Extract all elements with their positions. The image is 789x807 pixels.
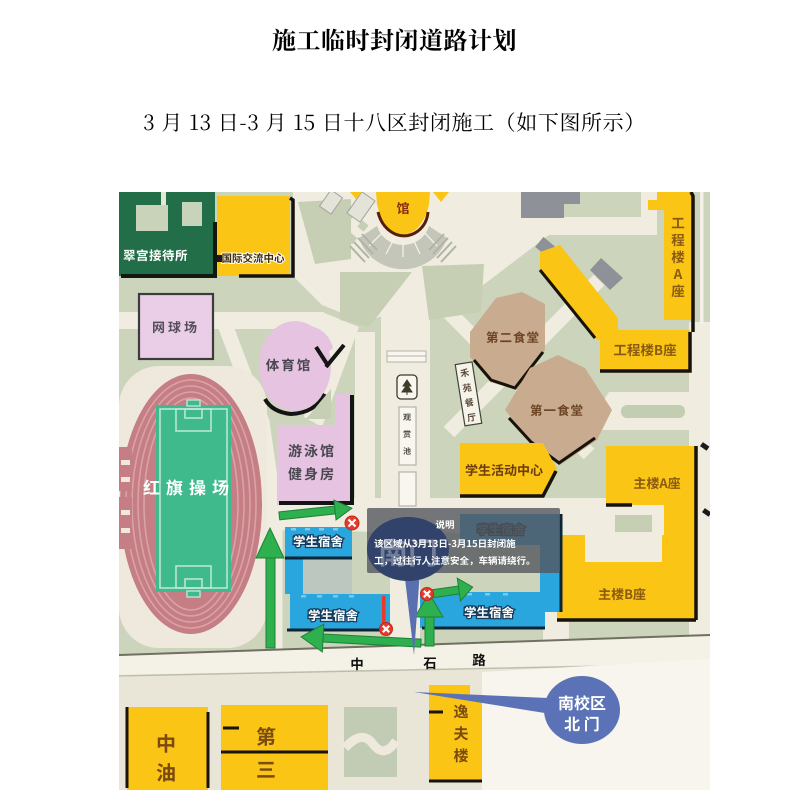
svg-text:主楼B座: 主楼B座	[598, 584, 646, 603]
svg-text:油: 油	[156, 757, 176, 786]
svg-text:第: 第	[256, 721, 276, 750]
svg-text:座: 座	[671, 280, 685, 300]
svg-text:夫: 夫	[453, 723, 468, 744]
svg-text:学生宿舍: 学生宿舍	[464, 602, 515, 621]
svg-text:北 门: 北 门	[564, 711, 600, 735]
svg-text:主楼A座: 主楼A座	[633, 473, 680, 492]
svg-text:楼: 楼	[453, 745, 468, 766]
svg-text:说明: 说明	[435, 517, 454, 531]
svg-text:翠宫接待所: 翠宫接待所	[123, 245, 188, 264]
svg-text:该区域从3月13日-3月15日封闭施: 该区域从3月13日-3月15日封闭施	[374, 536, 516, 550]
svg-text:馆: 馆	[396, 198, 409, 217]
svg-text:路: 路	[472, 649, 486, 669]
svg-text:工，过往行人注意安全，车辆请绕行。: 工，过往行人注意安全，车辆请绕行。	[374, 553, 536, 567]
svg-text:网球场: 网球场	[152, 317, 200, 336]
svg-text:游泳馆: 游泳馆	[288, 441, 336, 461]
svg-text:中: 中	[156, 728, 176, 757]
svg-text:逸: 逸	[453, 701, 468, 722]
svg-text:中: 中	[350, 653, 364, 673]
svg-text:三: 三	[256, 754, 276, 783]
svg-text:赏: 赏	[403, 429, 411, 440]
svg-text:学生活动中心: 学生活动中心	[465, 460, 543, 479]
svg-text:第二食堂: 第二食堂	[486, 327, 540, 346]
svg-text:观: 观	[403, 412, 411, 423]
svg-text:健身房: 健身房	[288, 464, 336, 484]
svg-text:学生宿舍: 学生宿舍	[293, 531, 344, 550]
svg-text:学生宿舍: 学生宿舍	[308, 605, 359, 624]
svg-text:第一食堂: 第一食堂	[530, 400, 584, 419]
svg-text:工程楼B座: 工程楼B座	[613, 339, 677, 359]
svg-text:池: 池	[403, 446, 411, 457]
svg-text:红旗操场: 红旗操场	[143, 474, 235, 499]
svg-text:国际交流中心: 国际交流中心	[222, 251, 285, 266]
svg-text:体育馆: 体育馆	[266, 354, 313, 374]
svg-text:石: 石	[423, 652, 437, 672]
